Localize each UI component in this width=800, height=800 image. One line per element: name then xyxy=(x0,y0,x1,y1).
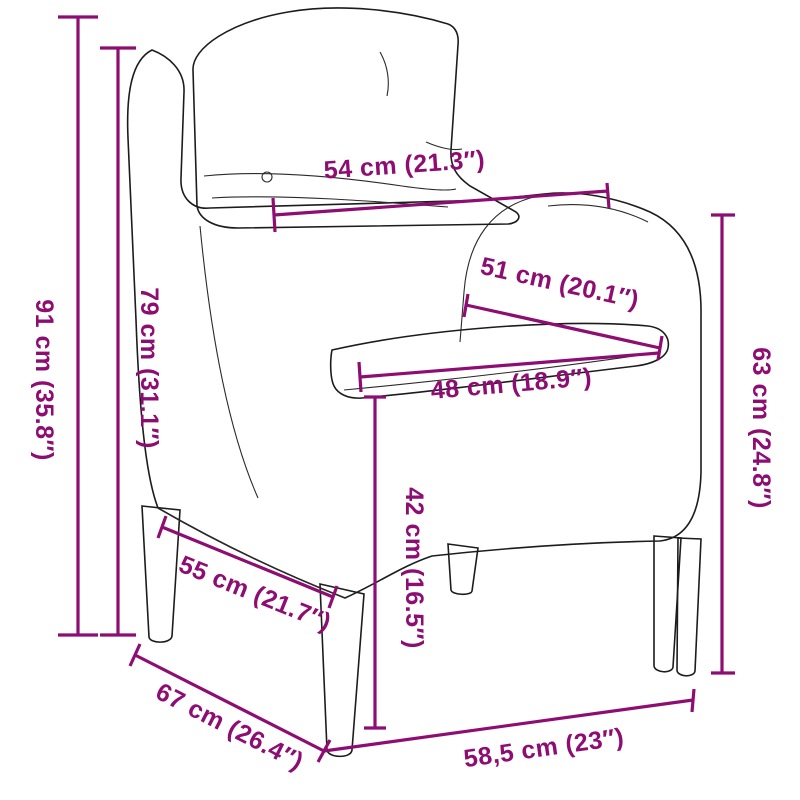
dimension-label-inner-width: 51 cm (20.1″) xyxy=(478,252,642,314)
dimension-overall-height: 91 cm (35.8″) xyxy=(30,17,98,635)
dimension-label-seat-height: 42 cm (16.5″) xyxy=(400,487,428,649)
chair-dimension-drawing: 91 cm (35.8″) 79 cm (31.1″) 54 cm (21.3″… xyxy=(0,0,800,800)
dimension-inner-width: 51 cm (20.1″) xyxy=(464,252,662,360)
back-cushion xyxy=(193,8,519,228)
back-cushion-shape xyxy=(193,8,519,228)
dimension-label-seat-depth: 55 cm (21.7″) xyxy=(175,550,335,637)
dimension-backrest-height: 79 cm (31.1″) xyxy=(100,48,163,635)
dimension-lines: 91 cm (35.8″) 79 cm (31.1″) 54 cm (21.3″… xyxy=(30,17,775,776)
dimension-seat-height: 42 cm (16.5″) xyxy=(364,397,428,728)
dimension-armrest-height: 63 cm (24.8″) xyxy=(711,215,775,673)
dimension-seat-width: 48 cm (18.9″) xyxy=(359,353,659,405)
dimension-label-armrest-height: 63 cm (24.8″) xyxy=(747,347,775,509)
dimension-label-overall-depth: 67 cm (26.4″) xyxy=(151,678,308,776)
dimension-overall-depth: 67 cm (26.4″) xyxy=(130,644,330,776)
right-front-leg xyxy=(677,538,701,676)
dimension-diagram: 91 cm (35.8″) 79 cm (31.1″) 54 cm (21.3″… xyxy=(0,0,800,800)
dimension-label-base-width: 58,5 cm (23″) xyxy=(462,723,626,773)
dimension-base-width: 58,5 cm (23″) xyxy=(324,689,694,773)
dimension-label-overall-height: 91 cm (35.8″) xyxy=(30,299,58,461)
dimension-backrest-top-width: 54 cm (21.3″) xyxy=(273,145,609,232)
dimension-label-backrest-height: 79 cm (31.1″) xyxy=(135,287,163,449)
dimension-seat-depth: 55 cm (21.7″) xyxy=(158,516,337,637)
